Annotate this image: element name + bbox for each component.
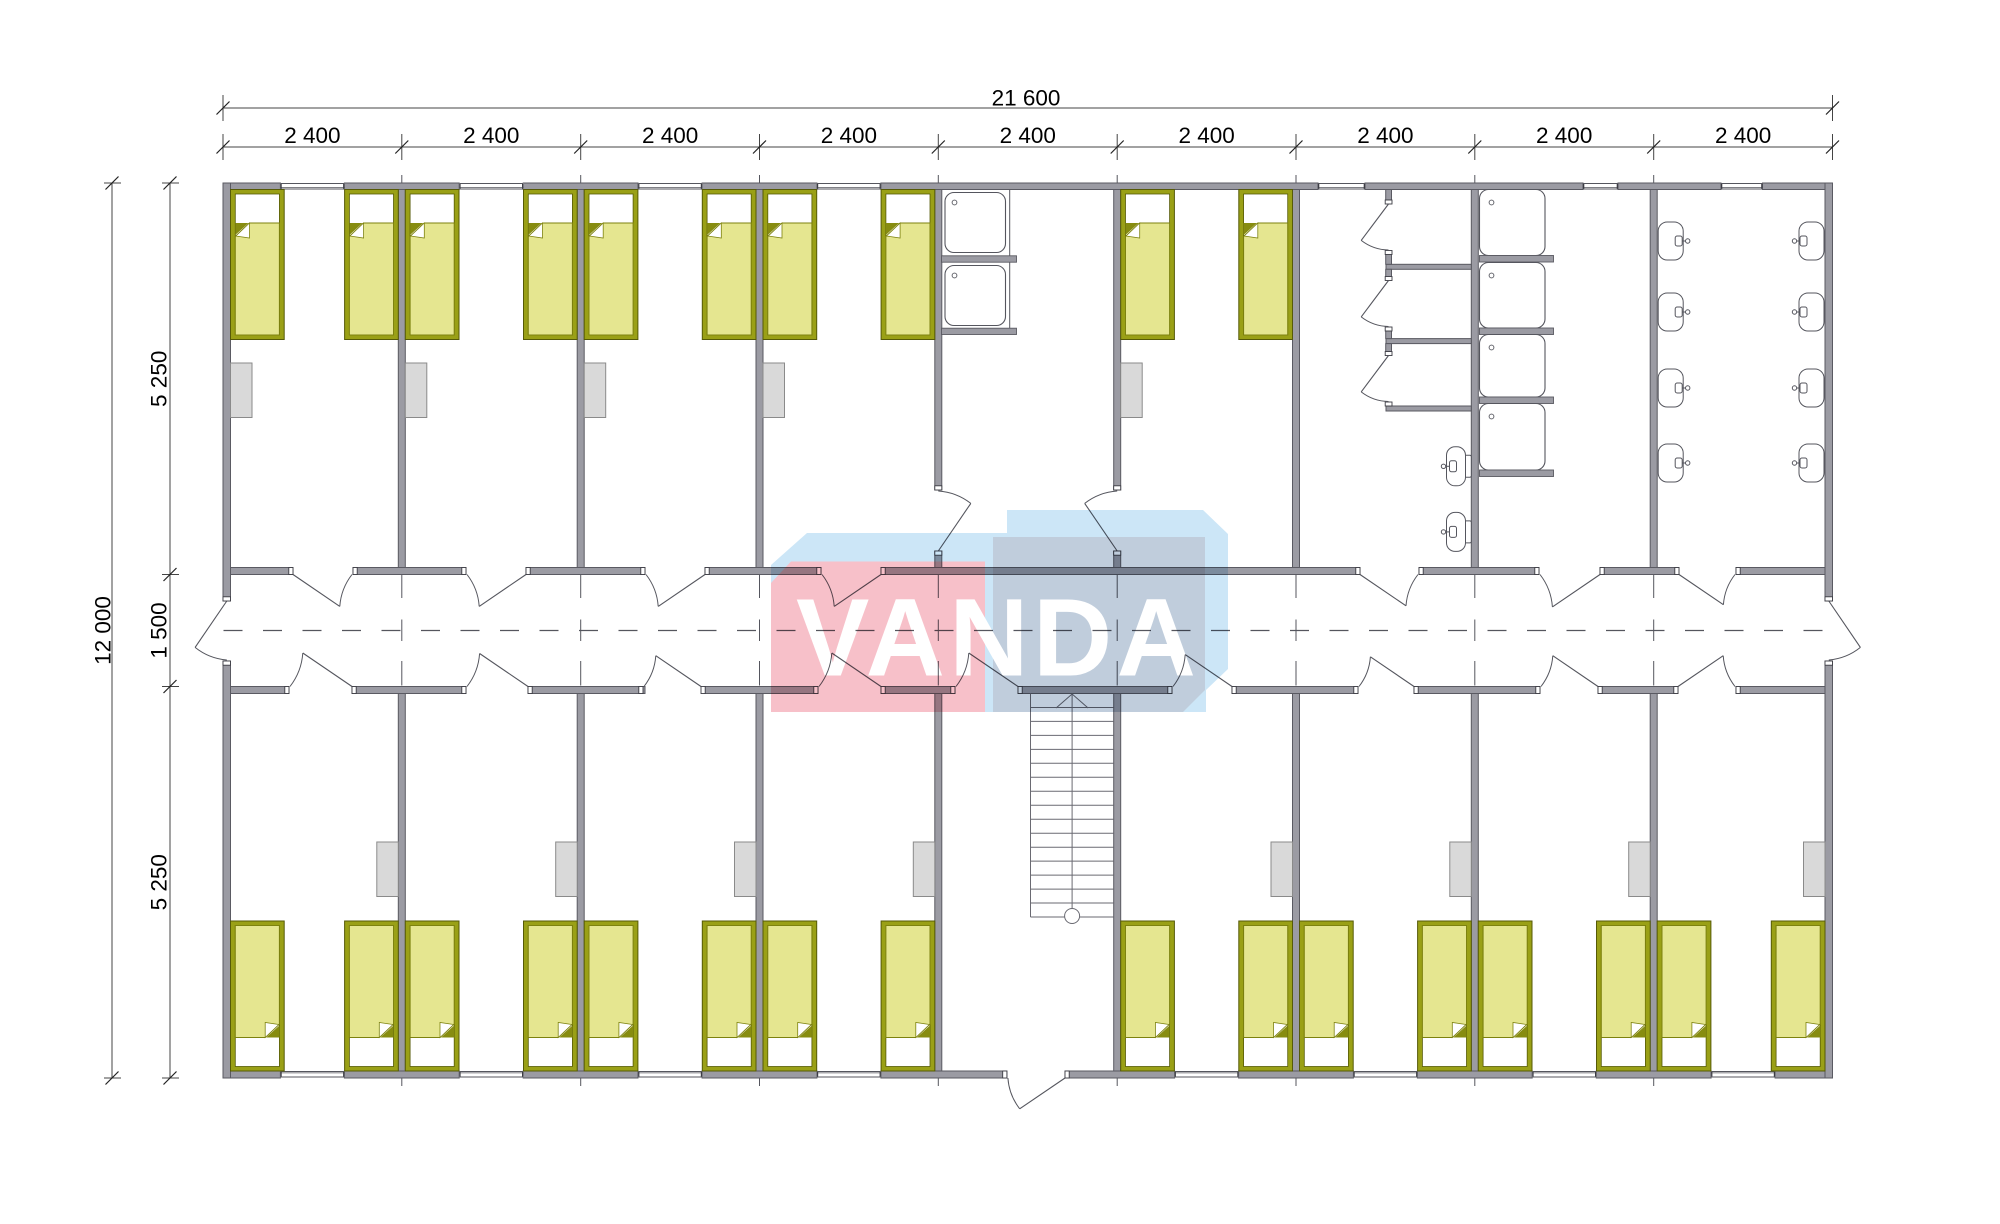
svg-text:2 400: 2 400 bbox=[821, 123, 877, 148]
svg-text:5 250: 5 250 bbox=[147, 351, 172, 407]
svg-text:5 250: 5 250 bbox=[147, 854, 172, 910]
svg-text:2 400: 2 400 bbox=[1715, 123, 1771, 148]
svg-text:2 400: 2 400 bbox=[1000, 123, 1056, 148]
svg-text:21 600: 21 600 bbox=[992, 86, 1061, 111]
svg-text:2 400: 2 400 bbox=[284, 123, 340, 148]
svg-text:12 000: 12 000 bbox=[91, 596, 116, 665]
svg-text:2 400: 2 400 bbox=[1178, 123, 1234, 148]
svg-text:2 400: 2 400 bbox=[463, 123, 519, 148]
svg-text:2 400: 2 400 bbox=[642, 123, 698, 148]
svg-text:2 400: 2 400 bbox=[1536, 123, 1592, 148]
svg-text:1 500: 1 500 bbox=[147, 602, 172, 658]
svg-text:2 400: 2 400 bbox=[1357, 123, 1413, 148]
